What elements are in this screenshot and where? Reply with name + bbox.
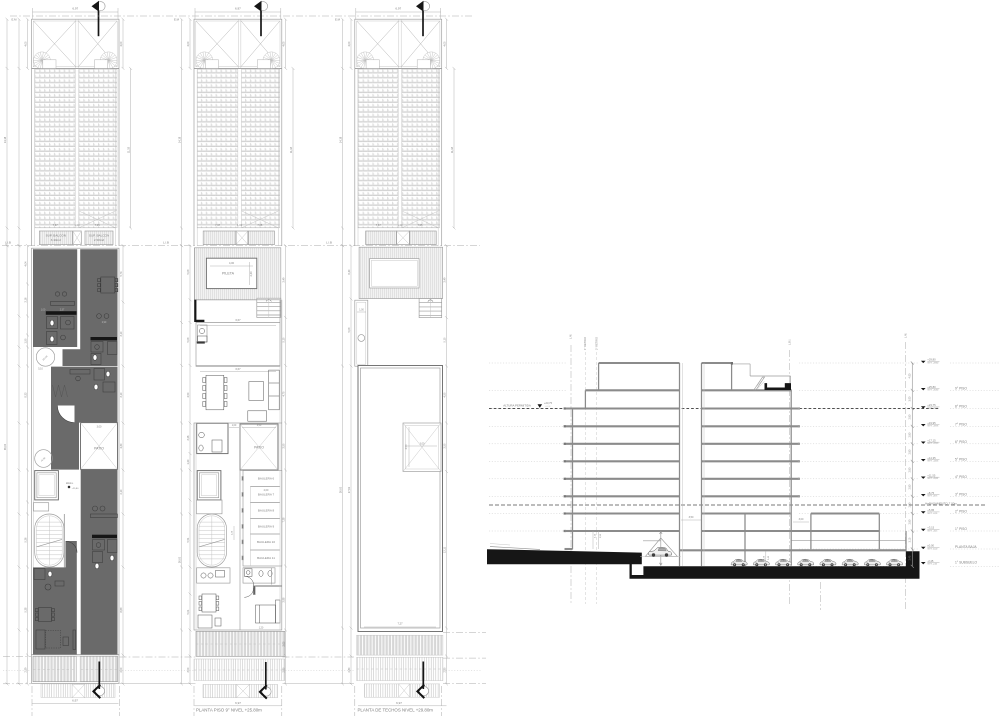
svg-text:2,80: 2,80: [909, 484, 912, 489]
svg-text:7° PISO: 7° PISO: [955, 422, 967, 426]
svg-text:3° PISO: 3° PISO: [955, 492, 967, 496]
svg-text:4,00: 4,00: [909, 373, 912, 378]
svg-text:36,00: 36,00: [178, 556, 181, 563]
svg-text:L.I.B: L.I.B: [5, 241, 11, 245]
svg-text:3,88: 3,88: [282, 597, 285, 602]
svg-text:E.M: E.M: [174, 18, 180, 22]
svg-text:2,39: 2,39: [24, 667, 27, 672]
svg-text:N.P.T. -2,45: N.P.T. -2,45: [928, 564, 937, 566]
svg-text:1,00: 1,00: [232, 425, 237, 427]
svg-text:BAULERA 10: BAULERA 10: [257, 540, 275, 544]
svg-text:N.P.T. +25,80: N.P.T. +25,80: [928, 390, 939, 392]
svg-text:PLANTA DE TECHOS NIVEL +29.80m: PLANTA DE TECHOS NIVEL +29.80m: [358, 707, 434, 712]
svg-text:3,00: 3,00: [909, 396, 912, 401]
svg-text:13,11: 13,11: [443, 546, 446, 553]
svg-text:2,80: 2,80: [909, 414, 912, 419]
svg-text:14,18: 14,18: [4, 136, 7, 143]
svg-text:ALTURA PERMITIDA: ALTURA PERMITIDA: [503, 403, 531, 407]
svg-text:6° PISO: 6° PISO: [955, 440, 967, 444]
svg-text:8° PISO: 8° PISO: [955, 405, 967, 409]
svg-text:4,00: 4,00: [229, 261, 235, 265]
svg-text:6,97: 6,97: [395, 7, 401, 11]
svg-text:3,00: 3,00: [187, 667, 190, 672]
svg-text:11,18: 11,18: [290, 146, 293, 153]
svg-text:4,04: 4,04: [24, 261, 27, 266]
svg-text:6,40: 6,40: [348, 269, 351, 274]
svg-text:6,97: 6,97: [72, 699, 78, 703]
svg-text:4,00: 4,00: [24, 41, 27, 46]
svg-text:2,10: 2,10: [120, 489, 123, 494]
svg-text:+23,75: +23,75: [927, 403, 936, 407]
svg-text:6,67: 6,67: [235, 367, 241, 371]
svg-text:7,05: 7,05: [257, 223, 263, 227]
svg-text:5,10: 5,10: [282, 337, 285, 342]
svg-text:2,80: 2,80: [443, 667, 446, 672]
svg-text:36,00: 36,00: [339, 486, 342, 493]
svg-text:+25,80: +25,80: [927, 385, 936, 389]
svg-text:BAULERA 11: BAULERA 11: [257, 556, 275, 560]
svg-text:3,49: 3,49: [443, 277, 446, 282]
svg-text:N.P.T. +29,80: N.P.T. +29,80: [928, 362, 939, 364]
svg-text:2,80: 2,80: [909, 449, 912, 454]
svg-text:3,00: 3,00: [420, 443, 425, 446]
svg-text:BAULERA 6: BAULERA 6: [258, 477, 275, 481]
svg-text:3,00: 3,00: [799, 518, 804, 521]
svg-text:L.M.: L.M.: [903, 333, 907, 338]
svg-text:6,97: 6,97: [235, 7, 241, 11]
svg-text:3,49: 3,49: [282, 277, 285, 282]
svg-text:5,10: 5,10: [38, 369, 43, 371]
svg-text:N.P.T. +19,95: N.P.T. +19,95: [928, 426, 939, 428]
svg-text:2,37: 2,37: [60, 309, 65, 311]
svg-text:5,74: 5,74: [120, 271, 123, 276]
svg-text:L.I.B: L.I.B: [163, 241, 169, 245]
svg-text:27,61: 27,61: [348, 486, 351, 493]
svg-text:2,80: 2,80: [909, 432, 912, 437]
svg-text:2,40: 2,40: [249, 271, 253, 277]
svg-text:+14,35: +14,35: [927, 456, 936, 460]
svg-text:2,00: 2,00: [264, 489, 269, 492]
svg-text:L.I.B: L.I.B: [326, 241, 332, 245]
svg-text:N.P.T. +14,35: N.P.T. +14,35: [928, 461, 939, 463]
svg-text:11,18: 11,18: [127, 146, 130, 153]
svg-text:3,15: 3,15: [909, 537, 912, 542]
svg-text:PLANTA PISO 9° NIVEL +25.80m: PLANTA PISO 9° NIVEL +25.80m: [196, 707, 262, 712]
svg-text:9° PISO: 9° PISO: [955, 386, 967, 390]
svg-text:N.P.T. +17,15: N.P.T. +17,15: [928, 443, 939, 445]
svg-text:5,36: 5,36: [24, 537, 27, 542]
svg-text:1° RETIRO: 1° RETIRO: [583, 337, 587, 350]
svg-text:HALL: HALL: [66, 481, 74, 485]
svg-text:3,50: 3,50: [689, 516, 694, 519]
svg-text:5,10: 5,10: [443, 337, 446, 342]
svg-text:1,00: 1,00: [237, 223, 243, 227]
svg-text:3,50: 3,50: [282, 443, 285, 448]
svg-text:2° RETIRO: 2° RETIRO: [594, 337, 598, 350]
svg-text:3,10: 3,10: [120, 331, 123, 336]
svg-text:+25,80: +25,80: [72, 488, 80, 490]
svg-text:1,00: 1,00: [359, 310, 364, 312]
svg-text:PILETA: PILETA: [222, 272, 235, 276]
svg-text:5,51: 5,51: [187, 537, 190, 542]
svg-text:+29,80: +29,80: [927, 358, 936, 362]
svg-text:SUP. BALCON: SUP. BALCON: [89, 234, 109, 238]
svg-text:E.M: E.M: [12, 18, 18, 22]
svg-text:7,05: 7,05: [95, 223, 101, 227]
svg-text:+17,15: +17,15: [927, 438, 936, 442]
svg-text:6,67: 6,67: [235, 318, 241, 322]
svg-text:+23,75: +23,75: [544, 401, 553, 405]
svg-text:7,38: 7,38: [282, 517, 285, 522]
svg-text:4,70: 4,70: [282, 391, 285, 396]
svg-text:7,67: 7,67: [215, 223, 221, 227]
svg-text:1,00: 1,00: [74, 223, 80, 227]
svg-text:+5,95: +5,95: [927, 508, 934, 512]
svg-text:BAULERA 9: BAULERA 9: [258, 524, 275, 528]
svg-text:5,01: 5,01: [187, 609, 190, 614]
svg-text:-2,45: -2,45: [927, 559, 934, 563]
svg-text:+11,55: +11,55: [927, 473, 936, 477]
svg-text:3.14m2: 3.14m2: [51, 238, 62, 242]
svg-text:7,67: 7,67: [376, 223, 382, 227]
svg-text:1,00: 1,00: [41, 309, 46, 311]
svg-text:2,45: 2,45: [909, 555, 912, 560]
svg-text:6,97: 6,97: [396, 701, 402, 705]
svg-text:5,09: 5,09: [187, 337, 190, 342]
svg-text:1,50: 1,50: [24, 338, 27, 343]
svg-text:SUP. BALCON: SUP. BALCON: [46, 234, 66, 238]
svg-text:7,05: 7,05: [417, 223, 423, 227]
svg-text:5,09: 5,09: [187, 269, 190, 274]
svg-text:PLANTA BAJA: PLANTA BAJA: [955, 545, 977, 549]
svg-text:8,69: 8,69: [120, 607, 123, 612]
svg-text:1,20: 1,20: [187, 459, 190, 464]
svg-text:N.P.T. +5,95: N.P.T. +5,95: [928, 513, 938, 515]
svg-text:3,50: 3,50: [405, 444, 408, 449]
svg-text:5,38: 5,38: [24, 607, 27, 612]
svg-text:+3,15: +3,15: [927, 526, 934, 530]
svg-text:2,90: 2,90: [102, 322, 107, 324]
svg-text:2,80: 2,80: [909, 519, 912, 524]
svg-text:BAULERA 7: BAULERA 7: [258, 493, 275, 497]
svg-text:+24,08: +24,08: [545, 406, 551, 408]
svg-text:2,80: 2,80: [282, 667, 285, 672]
svg-text:7,27: 7,27: [397, 622, 403, 626]
svg-text:3,26: 3,26: [187, 435, 190, 440]
svg-text:N.P.T. ±0,00: N.P.T. ±0,00: [928, 548, 938, 550]
svg-text:BAULERA 8: BAULERA 8: [258, 509, 275, 513]
svg-text:L.M.: L.M.: [569, 334, 573, 339]
svg-text:PATIO: PATIO: [254, 446, 264, 450]
svg-text:E.M: E.M: [335, 18, 341, 22]
svg-text:+8,75: +8,75: [927, 491, 934, 495]
svg-text:4,50: 4,50: [443, 392, 446, 397]
svg-text:5° PISO: 5° PISO: [955, 457, 967, 461]
svg-text:1° SUBSUELO: 1° SUBSUELO: [955, 560, 977, 564]
svg-text:PATIO: PATIO: [94, 447, 104, 451]
svg-text:N.P.T. +23,75: N.P.T. +23,75: [928, 408, 939, 410]
svg-text:N.P.T. +8,75: N.P.T. +8,75: [928, 496, 938, 498]
svg-text:±0,00: ±0,00: [927, 544, 934, 548]
svg-text:4,00: 4,00: [120, 41, 123, 46]
svg-text:2° PISO: 2° PISO: [955, 510, 967, 514]
svg-text:6,97: 6,97: [235, 701, 241, 705]
svg-text:4,00: 4,00: [443, 41, 446, 46]
svg-text:2,80: 2,80: [909, 467, 912, 472]
svg-text:6,97: 6,97: [72, 7, 78, 11]
svg-text:3,50: 3,50: [257, 425, 262, 427]
svg-text:3,00: 3,00: [97, 426, 102, 429]
svg-text:1,20: 1,20: [259, 628, 264, 630]
svg-text:7,67: 7,67: [53, 223, 59, 227]
svg-text:2,80: 2,80: [909, 502, 912, 507]
svg-text:4,00: 4,00: [187, 41, 190, 46]
svg-text:3,00: 3,00: [282, 641, 285, 646]
svg-text:H=BASAMENTO 7.00m: H=BASAMENTO 7.00m: [925, 501, 957, 505]
svg-text:36,00: 36,00: [4, 443, 7, 450]
svg-text:N.P.T. +11,55: N.P.T. +11,55: [928, 478, 939, 480]
svg-text:2,00: 2,00: [120, 667, 123, 672]
svg-text:N.P.T. +3,15: N.P.T. +3,15: [928, 530, 938, 532]
svg-text:5,09: 5,09: [348, 327, 351, 332]
svg-text:14,18: 14,18: [178, 136, 181, 143]
svg-text:3,16: 3,16: [24, 297, 27, 302]
svg-text:1,00: 1,00: [397, 223, 403, 227]
svg-text:4° PISO: 4° PISO: [955, 475, 967, 479]
svg-text:11,18: 11,18: [451, 146, 454, 153]
svg-text:14,18: 14,18: [339, 136, 342, 143]
svg-text:4,30: 4,30: [120, 443, 123, 448]
svg-text:2,80: 2,80: [348, 667, 351, 672]
svg-text:2.58m2: 2.58m2: [94, 238, 105, 242]
svg-text:4,00: 4,00: [348, 41, 351, 46]
svg-text:4,50: 4,50: [187, 392, 190, 397]
svg-text:3,10: 3,10: [120, 392, 123, 397]
svg-text:L.B.I.: L.B.I.: [787, 339, 791, 345]
svg-text:4,00: 4,00: [282, 41, 285, 46]
svg-text:8,33: 8,33: [24, 392, 27, 397]
svg-text:1° PISO: 1° PISO: [955, 527, 967, 531]
svg-text:+19,95: +19,95: [927, 421, 936, 425]
svg-text:3,50: 3,50: [443, 443, 446, 448]
